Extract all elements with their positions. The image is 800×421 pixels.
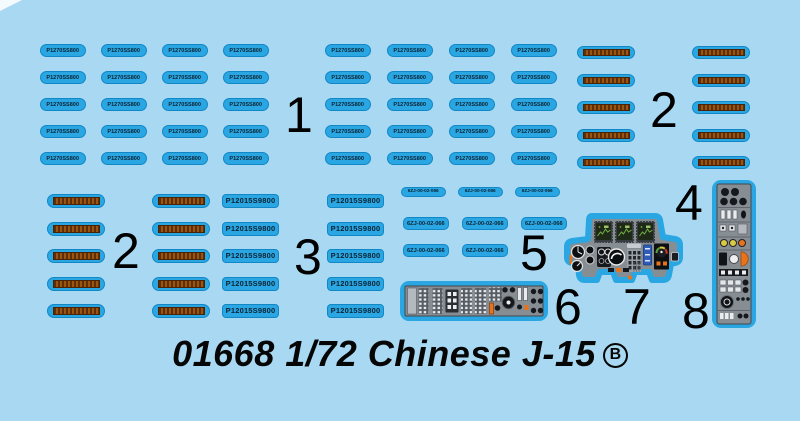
stencil-decal: P1270SS800 <box>449 152 495 165</box>
walkway-strip-decal <box>152 194 210 208</box>
front-console-decal-6 <box>400 281 548 321</box>
walkway-strip-decal <box>152 249 210 263</box>
walkway-strip-decal <box>152 277 210 291</box>
walkway-strip-decal <box>47 277 105 291</box>
stencil-decal: P12015S9800 <box>327 249 384 263</box>
walkway-strip-decal <box>577 129 635 142</box>
mfd-screen <box>636 221 655 243</box>
stencil-text: P1270SS800 <box>518 156 551 162</box>
center-gauge-cluster <box>597 247 625 267</box>
stencil-text: P12015S9800 <box>331 307 381 315</box>
walkway-strip-decal <box>47 222 105 236</box>
strip-texture <box>698 132 745 139</box>
stencil-decal: P12015S9800 <box>222 304 279 318</box>
stencil-decal: P1270SS800 <box>449 98 495 111</box>
stencil-decal: 6ZJ-00-02-066 <box>458 187 503 197</box>
strip-texture <box>583 77 630 84</box>
stencil-decal: 6ZJ-00-02-066 <box>401 187 446 197</box>
strip-column-mid-left <box>47 194 105 318</box>
stencil-decal: P1270SS800 <box>387 44 433 57</box>
small-knob <box>495 305 501 311</box>
orange-switch <box>490 303 494 314</box>
group-label-3: 3 <box>294 232 322 282</box>
stencil-decal: P12015S9800 <box>222 194 279 208</box>
group-label-4: 4 <box>675 178 703 228</box>
strip-texture <box>583 49 630 56</box>
strip-texture <box>583 104 630 111</box>
stencil-decal: P1270SS800 <box>162 71 208 84</box>
stencil-decal: P1270SS800 <box>40 125 86 138</box>
strip-column-top-left <box>577 46 635 169</box>
stencil-decal: P1270SS800 <box>449 71 495 84</box>
stencil-text: P1270SS800 <box>518 129 551 135</box>
stencil-text: P1270SS800 <box>108 129 141 135</box>
stencil-text: P12015S9800 <box>226 197 276 205</box>
stencil-decal: P1270SS800 <box>223 98 269 111</box>
stencil-decal: P1270SS800 <box>101 152 147 165</box>
stencil-text: P1270SS800 <box>230 129 263 135</box>
stencil-text: P1270SS800 <box>518 75 551 81</box>
stencil-decal: P12015S9800 <box>327 222 384 236</box>
stencil-decal: P1270SS800 <box>511 44 557 57</box>
stencil-decal: P12015S9800 <box>327 194 384 208</box>
stencil-text: P1270SS800 <box>518 102 551 108</box>
stencil-decal: P1270SS800 <box>162 44 208 57</box>
code-stencil-row-3: 6ZJ-00-02-0666ZJ-00-02-066 <box>403 244 508 257</box>
stencil-text: P1270SS800 <box>108 102 141 108</box>
stencil-text: 6ZJ-00-02-066 <box>407 248 445 254</box>
stencil-text: P1270SS800 <box>230 48 263 54</box>
stencil-text: P1270SS800 <box>332 102 365 108</box>
walkway-strip-decal <box>577 74 635 87</box>
stencil-text: 6ZJ-00-02-066 <box>407 221 445 227</box>
strip-texture <box>698 49 745 56</box>
stencil-decal: P12015S9800 <box>327 304 384 318</box>
strip-texture <box>53 280 100 288</box>
stencil-text: P1270SS800 <box>332 75 365 81</box>
stencil-text: P1270SS800 <box>456 129 489 135</box>
stencil-decal: P1270SS800 <box>325 98 371 111</box>
stencil-decal: 6ZJ-00-02-066 <box>462 244 508 257</box>
mfd-screen <box>594 221 613 243</box>
code-stencil-row-1: 6ZJ-00-02-0666ZJ-00-02-0666ZJ-00-02-066 <box>401 187 560 197</box>
stencil-decal: P1270SS800 <box>162 152 208 165</box>
stencil-text: 6ZJ-00-02-066 <box>466 221 504 227</box>
strip-texture <box>583 159 630 166</box>
walkway-strip-decal <box>577 156 635 169</box>
walkway-strip-decal <box>152 304 210 318</box>
group-label-1: 1 <box>285 90 313 140</box>
stencil-text: P1270SS800 <box>230 156 263 162</box>
stencil-text: P1270SS800 <box>108 75 141 81</box>
stencil-text: P1270SS800 <box>332 129 365 135</box>
stencil-text: P1270SS800 <box>456 102 489 108</box>
stencil-grid-1-right: P1270SS800P1270SS800P1270SS800P1270SS800… <box>325 44 557 165</box>
stencil-text: P1270SS800 <box>394 75 427 81</box>
strip-texture <box>158 280 205 288</box>
stencil-decal: P1270SS800 <box>387 71 433 84</box>
hud-display <box>644 245 652 265</box>
strip-texture <box>698 159 745 166</box>
group-label-2-top: 2 <box>650 85 678 135</box>
walkway-strip-decal <box>152 222 210 236</box>
stencil-text: P1270SS800 <box>394 48 427 54</box>
stencil-text: 6ZJ-00-02-066 <box>466 248 504 254</box>
stencil-grid-1-left: P1270SS800P1270SS800P1270SS800P1270SS800… <box>40 44 269 165</box>
walkway-strip-decal <box>577 46 635 59</box>
stencil-column-3-right: P12015S9800P12015S9800P12015S9800P12015S… <box>327 194 384 318</box>
decal-sheet: P1270SS800P1270SS800P1270SS800P1270SS800… <box>0 0 800 421</box>
walkway-strip-decal <box>692 74 750 87</box>
sheet-corner-sliver <box>0 0 22 11</box>
engine-gauge-panel <box>654 244 669 270</box>
stencil-decal: P1270SS800 <box>40 98 86 111</box>
strip-texture <box>158 225 205 233</box>
stencil-text: P1270SS800 <box>169 156 202 162</box>
stencil-text: P1270SS800 <box>456 156 489 162</box>
stencil-decal: P1270SS800 <box>223 44 269 57</box>
stencil-decal: P1270SS800 <box>325 44 371 57</box>
stencil-decal: P1270SS800 <box>162 125 208 138</box>
stencil-text: P1270SS800 <box>108 156 141 162</box>
kit-title: 01668 1/72 Chinese J-15 <box>172 334 596 374</box>
stencil-text: P1270SS800 <box>230 75 263 81</box>
strip-texture <box>698 104 745 111</box>
stencil-decal: P1270SS800 <box>223 125 269 138</box>
walkway-strip-decal <box>47 249 105 263</box>
stencil-decal: 6ZJ-00-02-066 <box>515 187 560 197</box>
stencil-decal: P1270SS800 <box>101 44 147 57</box>
indicator-lights <box>721 240 746 247</box>
stencil-decal: P1270SS800 <box>511 98 557 111</box>
stencil-text: P1270SS800 <box>169 75 202 81</box>
strip-texture <box>583 132 630 139</box>
stencil-column-3-left: P12015S9800P12015S9800P12015S9800P12015S… <box>222 194 279 318</box>
sheet-letter-badge: B <box>603 343 628 368</box>
stencil-decal: P1270SS800 <box>511 71 557 84</box>
stencil-decal: P1270SS800 <box>101 71 147 84</box>
group-label-2-mid: 2 <box>112 226 140 276</box>
stencil-text: P12015S9800 <box>226 252 276 260</box>
slider-section <box>721 210 746 219</box>
stencil-decal: P1270SS800 <box>223 152 269 165</box>
stencil-text: P1270SS800 <box>332 48 365 54</box>
stencil-decal: P1270SS800 <box>449 44 495 57</box>
stencil-text: P1270SS800 <box>47 75 80 81</box>
strip-texture <box>158 307 205 315</box>
stencil-decal: P1270SS800 <box>162 98 208 111</box>
strip-texture <box>158 252 205 260</box>
stencil-decal: P12015S9800 <box>327 277 384 291</box>
stencil-text: P1270SS800 <box>47 102 80 108</box>
stencil-decal: P1270SS800 <box>40 152 86 165</box>
strip-texture <box>53 197 100 205</box>
group-label-7: 7 <box>623 282 651 332</box>
stencil-text: P1270SS800 <box>169 102 202 108</box>
stencil-text: P12015S9800 <box>226 280 276 288</box>
side-console-decal-8 <box>712 180 756 328</box>
stencil-text: P1270SS800 <box>108 48 141 54</box>
strip-texture <box>53 307 100 315</box>
walkway-strip-decal <box>692 156 750 169</box>
stencil-text: P1270SS800 <box>518 48 551 54</box>
mfd-screen <box>615 221 634 243</box>
stencil-decal: P1270SS800 <box>325 152 371 165</box>
walkway-strip-decal <box>692 129 750 142</box>
stencil-decal: P1270SS800 <box>449 125 495 138</box>
stencil-decal: P1270SS800 <box>40 71 86 84</box>
strip-texture <box>698 77 745 84</box>
stencil-text: P1270SS800 <box>394 156 427 162</box>
stencil-text: P1270SS800 <box>394 129 427 135</box>
console-side-plate <box>408 288 417 314</box>
strip-column-mid-right <box>152 194 210 318</box>
stencil-decal: P1270SS800 <box>387 152 433 165</box>
stencil-decal: P1270SS800 <box>101 98 147 111</box>
stencil-decal: 6ZJ-00-02-066 <box>403 244 449 257</box>
stencil-text: 6ZJ-00-02-066 <box>465 190 496 195</box>
stencil-text: P12015S9800 <box>331 225 381 233</box>
stencil-text: P1270SS800 <box>169 48 202 54</box>
walkway-strip-decal <box>47 304 105 318</box>
stencil-text: P12015S9800 <box>331 280 381 288</box>
strip-texture <box>53 252 100 260</box>
stencil-decal: P1270SS800 <box>387 98 433 111</box>
stencil-text: 6ZJ-00-02-066 <box>522 190 553 195</box>
stencil-text: P1270SS800 <box>47 129 80 135</box>
stencil-text: P1270SS800 <box>456 48 489 54</box>
sheet-title: 01668 1/72 Chinese J-15 B <box>0 334 800 374</box>
stencil-decal: P1270SS800 <box>101 125 147 138</box>
stencil-text: P1270SS800 <box>230 102 263 108</box>
walkway-strip-decal <box>577 101 635 114</box>
stencil-text: P1270SS800 <box>394 102 427 108</box>
stencil-decal: P1270SS800 <box>511 125 557 138</box>
strip-column-top-right <box>692 46 750 169</box>
stencil-decal: P1270SS800 <box>511 152 557 165</box>
keypad-panel <box>446 290 459 313</box>
stencil-text: P1270SS800 <box>456 75 489 81</box>
stencil-decal: P1270SS800 <box>223 71 269 84</box>
button-strip <box>719 269 748 276</box>
strip-texture <box>158 197 205 205</box>
stencil-text: P1270SS800 <box>47 156 80 162</box>
walkway-strip-decal <box>47 194 105 208</box>
stencil-decal: 6ZJ-00-02-066 <box>403 217 449 230</box>
stencil-decal: P1270SS800 <box>40 44 86 57</box>
stencil-text: 6ZJ-00-02-066 <box>408 190 439 195</box>
stencil-decal: 6ZJ-00-02-066 <box>462 217 508 230</box>
stencil-text: P1270SS800 <box>169 129 202 135</box>
side-button <box>672 253 679 262</box>
group-label-6: 6 <box>554 282 582 332</box>
stencil-decal: P12015S9800 <box>222 249 279 263</box>
stencil-text: P12015S9800 <box>331 197 381 205</box>
stencil-decal: P12015S9800 <box>222 277 279 291</box>
walkway-strip-decal <box>692 46 750 59</box>
group-label-8: 8 <box>682 286 710 336</box>
walkway-strip-decal <box>692 101 750 114</box>
stencil-text: P1270SS800 <box>47 48 80 54</box>
stencil-text: P12015S9800 <box>226 307 276 315</box>
stencil-text: P12015S9800 <box>226 225 276 233</box>
stencil-decal: P1270SS800 <box>325 125 371 138</box>
stencil-decal: P1270SS800 <box>325 71 371 84</box>
stencil-decal: P1270SS800 <box>387 125 433 138</box>
stencil-text: P12015S9800 <box>331 252 381 260</box>
adi-instrument <box>609 249 625 265</box>
stencil-decal: P12015S9800 <box>222 222 279 236</box>
group-label-5: 5 <box>520 228 548 278</box>
stencil-text: P1270SS800 <box>332 156 365 162</box>
strip-texture <box>53 225 100 233</box>
